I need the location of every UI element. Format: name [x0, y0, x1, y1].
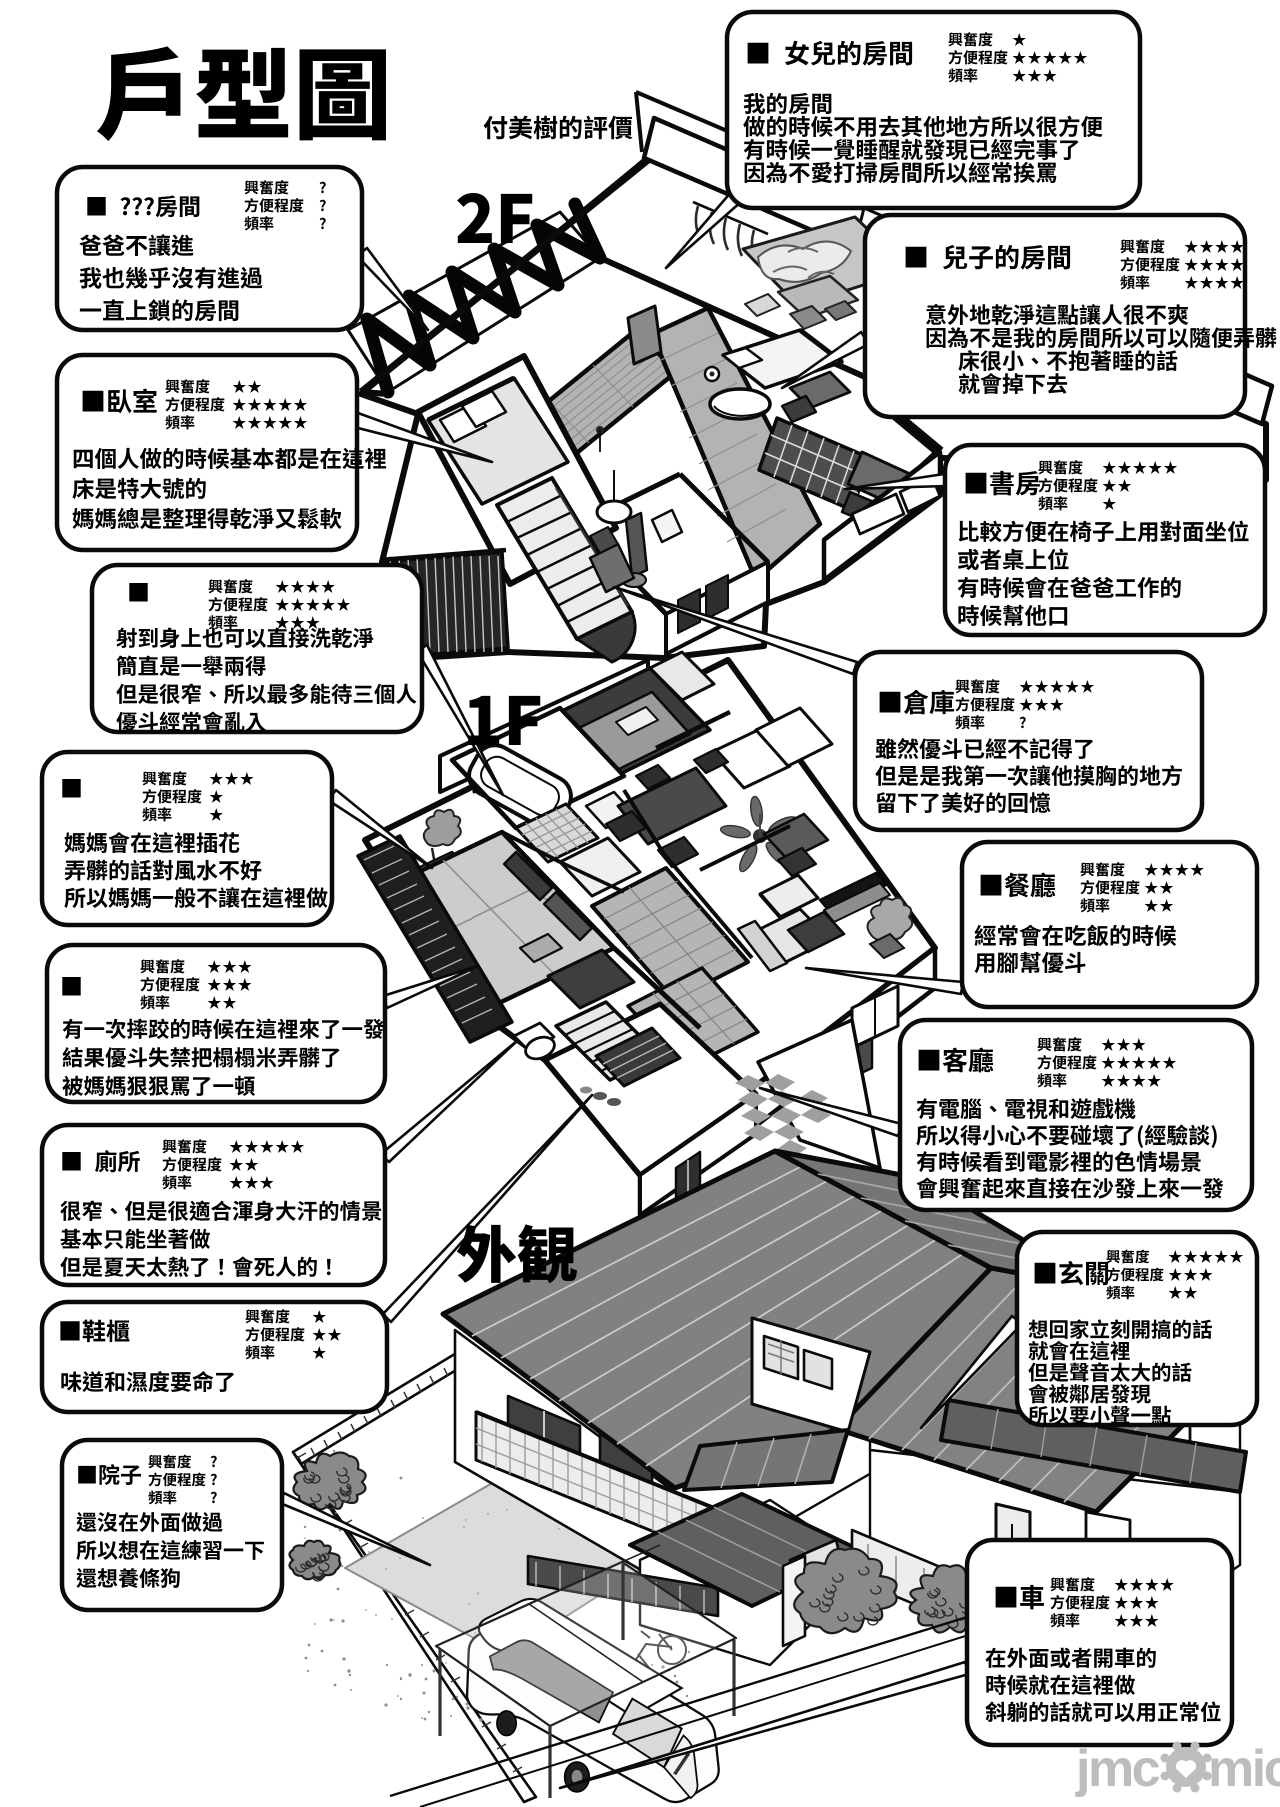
svg-text:jmc: jmc [1075, 1740, 1160, 1798]
svg-text:mic: mic [1208, 1740, 1280, 1798]
